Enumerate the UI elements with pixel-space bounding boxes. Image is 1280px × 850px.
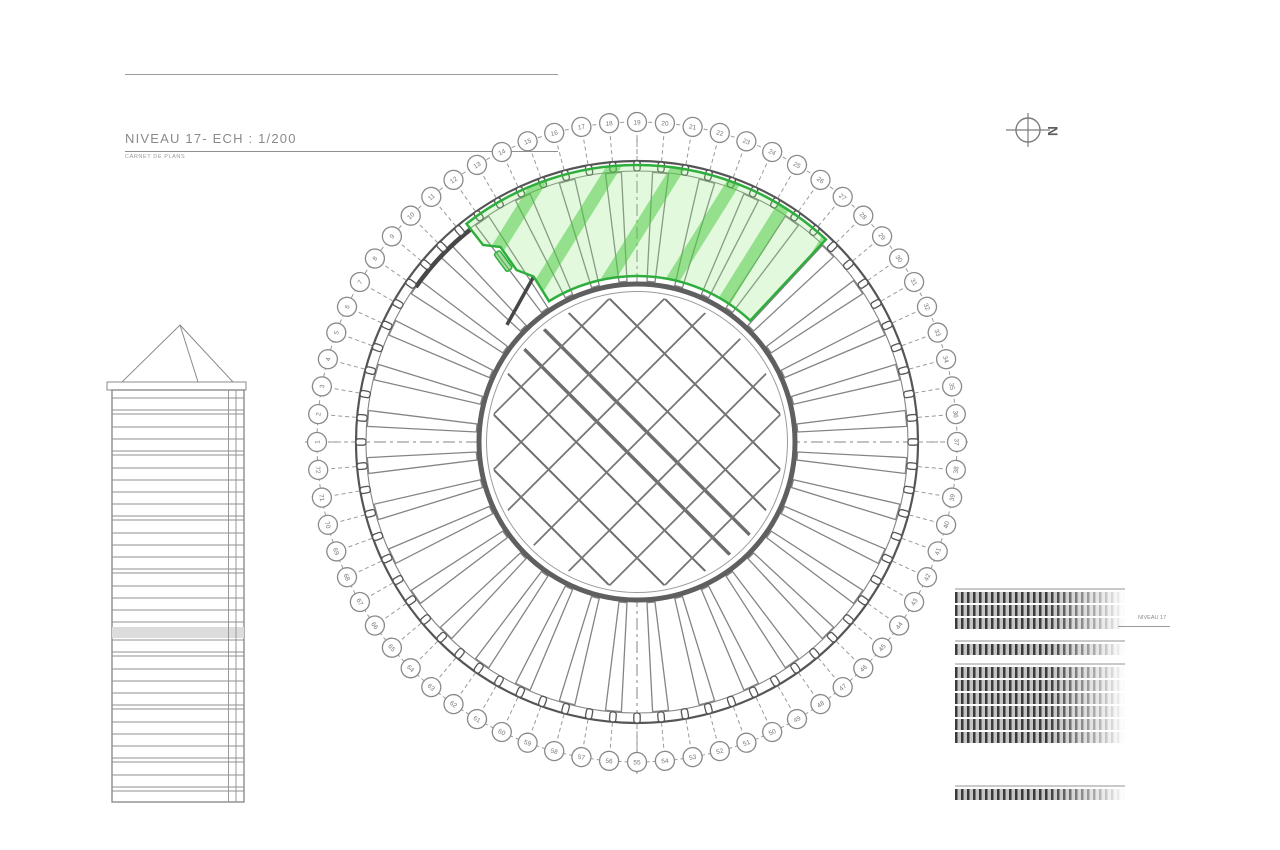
- facade-mullion: [360, 486, 371, 494]
- facade-window-band: [955, 592, 1125, 603]
- grid-number-bubble: 70: [316, 513, 339, 536]
- grid-number-bubble: 60: [489, 719, 514, 744]
- grid-number-bubble: 18: [599, 113, 620, 134]
- grid-number-bubble: 21: [682, 116, 704, 138]
- grid-number-bubble: 5: [324, 320, 348, 344]
- facade-mullion: [405, 595, 417, 606]
- facade-mullion: [907, 414, 918, 421]
- facade-mullion: [891, 343, 903, 352]
- facade-strip-group: [955, 588, 1125, 629]
- facade-mullion: [365, 366, 376, 375]
- grid-number-bubble: 19: [628, 113, 647, 132]
- facade-mullion: [538, 696, 547, 708]
- facade-window-band: [955, 719, 1125, 730]
- facade-mullion: [881, 320, 893, 330]
- grid-number-bubble: 4: [316, 348, 339, 371]
- grid-number-bubble: 31: [901, 269, 927, 295]
- grid-number-bubble: 40: [934, 513, 957, 536]
- facade-mullion: [561, 703, 570, 714]
- grid-number-bubble: 67: [347, 589, 373, 615]
- grid-number-bubble: 50: [760, 719, 785, 744]
- facade-mullion: [727, 696, 736, 708]
- grid-number-bubble: 63: [418, 674, 445, 701]
- svg-text:55: 55: [633, 759, 641, 766]
- facade-strip-group: [955, 663, 1125, 743]
- grid-number-bubble: 6: [334, 294, 359, 319]
- facade-mullion: [494, 675, 505, 687]
- svg-text:20: 20: [661, 120, 669, 128]
- grid-number-bubble: 17: [570, 116, 592, 138]
- facade-mullion: [609, 712, 616, 723]
- grid-number-bubble: 20: [655, 113, 676, 134]
- grid-number-bubble: 54: [655, 751, 676, 772]
- svg-text:37: 37: [953, 438, 960, 446]
- facade-mullion: [657, 712, 664, 723]
- facade-mullion: [681, 708, 689, 719]
- grid-number-bubble: 23: [734, 129, 758, 153]
- facade-mullion: [585, 708, 593, 719]
- grid-number-bubble: 41: [926, 539, 950, 563]
- facade-mullion: [360, 390, 371, 398]
- grid-number-bubble: 8: [362, 245, 388, 271]
- grid-number-bubble: 55: [628, 753, 647, 772]
- facade-window-band: [955, 732, 1125, 743]
- facade-mullion: [903, 486, 914, 494]
- grid-number-bubble: 71: [311, 487, 333, 509]
- grid-number-bubble: 25: [784, 152, 810, 178]
- facade-window-band: [955, 667, 1125, 678]
- facade-mullion: [898, 509, 909, 518]
- svg-text:38: 38: [953, 466, 961, 474]
- grid-number-bubble: 51: [734, 731, 758, 755]
- facade-mullion: [870, 299, 882, 310]
- grid-number-bubble: 72: [308, 460, 329, 481]
- grid-number-bubble: 29: [869, 223, 896, 250]
- grid-number-bubble: 13: [464, 152, 490, 178]
- grid-number-bubble: 44: [886, 612, 912, 638]
- grid-number-bubble: 45: [869, 634, 896, 661]
- grid-number-bubble: 57: [570, 746, 592, 768]
- grid-number-bubble: 24: [760, 139, 785, 164]
- grid-number-bubble: 38: [946, 460, 967, 481]
- facade-mullion: [515, 686, 525, 698]
- facade-mullion: [356, 439, 366, 445]
- facade-mullion: [770, 675, 781, 687]
- grid-number-bubble: 26: [807, 167, 833, 193]
- grid-number-bubble: 7: [347, 269, 373, 295]
- facade-mullion: [381, 554, 393, 564]
- grid-number-bubble: 39: [941, 487, 963, 509]
- grid-number-bubble: 33: [926, 320, 950, 344]
- grid-number-bubble: 43: [901, 589, 927, 615]
- grid-number-bubble: 62: [440, 691, 466, 717]
- tower-elevation: [107, 325, 246, 802]
- facade-window-band: [955, 680, 1125, 691]
- facade-mullion: [903, 390, 914, 398]
- circular-floor-plan: 1234567891011121314151617181920212223242…: [133, 0, 1155, 774]
- level-leader-line: [1118, 626, 1170, 627]
- grid-number-bubble: 42: [914, 565, 939, 590]
- grid-number-bubble: 65: [379, 634, 406, 661]
- facade-mullion: [473, 662, 484, 674]
- grid-number-bubble: 30: [886, 245, 912, 271]
- svg-text:54: 54: [661, 758, 669, 766]
- grid-number-bubble: 9: [379, 223, 406, 250]
- grid-number-bubble: 12: [440, 167, 466, 193]
- facade-mullion: [381, 320, 393, 330]
- grid-number-bubble: 35: [941, 375, 963, 397]
- grid-number-bubble: 36: [946, 404, 967, 425]
- facade-mullion: [891, 532, 903, 541]
- grid-number-bubble: 15: [515, 129, 539, 153]
- facade-mullion: [405, 278, 417, 289]
- grid-number-bubble: 61: [464, 706, 490, 732]
- facade-mullion: [870, 575, 882, 586]
- grid-number-bubble: 34: [934, 348, 957, 371]
- grid-number-bubble: 16: [543, 121, 566, 144]
- grid-number-bubble: 1: [308, 433, 327, 452]
- facade-mullion: [704, 703, 713, 714]
- grid-number-bubble: 53: [682, 746, 704, 768]
- grid-number-bubble: 37: [948, 433, 967, 452]
- svg-text:56: 56: [605, 758, 613, 766]
- facade-mullion: [372, 343, 384, 352]
- svg-text:19: 19: [633, 119, 641, 126]
- grid-number-bubble: 2: [308, 404, 329, 425]
- facade-mullion: [857, 595, 869, 606]
- facade-mullion: [365, 509, 376, 518]
- facade-mullion: [392, 575, 404, 586]
- facade-mullion: [634, 713, 640, 723]
- facade-window-band: [955, 693, 1125, 704]
- facade-strip-group: [955, 640, 1125, 655]
- facade-mullion: [908, 439, 918, 445]
- facade-mullion: [749, 686, 759, 698]
- facade-window-band: [955, 789, 1125, 800]
- grid-number-bubble: 59: [515, 731, 539, 755]
- facade-strip-group: [955, 785, 1125, 800]
- grid-number-bubble: 68: [334, 565, 359, 590]
- grid-number-bubble: 32: [914, 294, 939, 319]
- facade-mullion: [790, 662, 801, 674]
- svg-text:36: 36: [951, 410, 959, 418]
- facade-window-band: [955, 605, 1125, 616]
- svg-text:18: 18: [605, 120, 613, 128]
- grid-number-bubble: 47: [829, 674, 856, 701]
- grid-number-bubble: 49: [784, 706, 810, 732]
- tower-level-17-band: [112, 627, 244, 638]
- grid-number-bubble: 56: [599, 751, 620, 772]
- facade-mullion: [392, 299, 404, 310]
- grid-number-bubble: 27: [829, 184, 856, 211]
- level-label: NIVEAU 17: [1138, 615, 1166, 621]
- grid-number-bubble: 11: [418, 184, 445, 211]
- grid-number-bubble: 69: [324, 539, 348, 563]
- facade-window-band: [955, 706, 1125, 717]
- facade-mullion: [907, 462, 918, 469]
- facade-window-band: [955, 644, 1125, 655]
- grid-number-bubble: 58: [543, 739, 566, 762]
- facade-window-band: [955, 618, 1125, 629]
- grid-number-bubble: 52: [708, 739, 731, 762]
- facade-mullion: [898, 366, 909, 375]
- facade-mullion: [372, 532, 384, 541]
- svg-text:72: 72: [314, 466, 322, 474]
- facade-mullion: [881, 554, 893, 564]
- facade-mullion: [857, 278, 869, 289]
- svg-text:1: 1: [314, 440, 321, 444]
- scanned-plan-page: NIVEAU 17- ECH : 1/200 CARNET DE PLANS N…: [0, 0, 1280, 850]
- facade-mullion: [357, 462, 368, 469]
- grid-number-bubble: 14: [489, 139, 514, 164]
- grid-number-bubble: 66: [362, 612, 388, 638]
- grid-number-bubble: 22: [708, 121, 731, 144]
- grid-number-bubble: 48: [807, 691, 833, 717]
- facade-mullion: [357, 414, 368, 421]
- grid-number-bubble: 3: [311, 375, 333, 397]
